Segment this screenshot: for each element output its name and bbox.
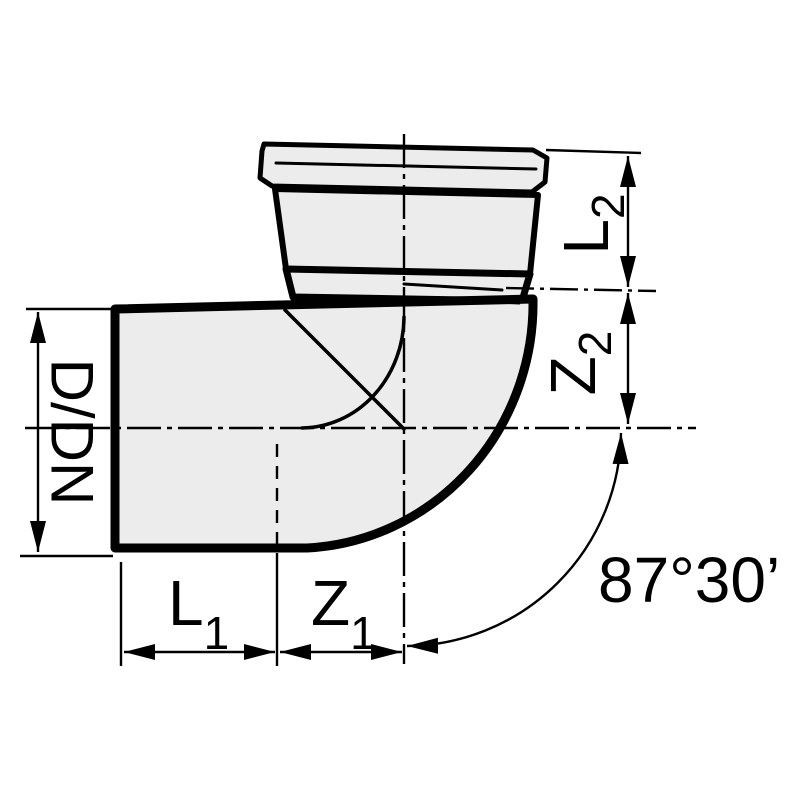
label-l1: L1 <box>168 567 229 659</box>
label-l2-base: L <box>550 219 622 255</box>
label-l1-base: L <box>168 567 204 639</box>
label-l2-subscript: 2 <box>582 193 634 219</box>
label-z2: Z2 <box>537 331 621 396</box>
pipe-bend-technical-drawing: D/DN L1 Z1 L2 Z2 87°30’ <box>0 0 800 800</box>
socket-wall <box>275 189 538 274</box>
bend-87-30-diagram: D/DN L1 Z1 L2 Z2 87°30’ <box>0 0 800 800</box>
label-z1: Z1 <box>311 567 376 659</box>
label-z2-base: Z <box>537 356 609 395</box>
label-z1-base: Z <box>311 567 350 639</box>
label-bend-angle: 87°30’ <box>598 544 780 616</box>
label-z1-subscript: 1 <box>350 607 376 659</box>
label-l2: L2 <box>550 193 634 254</box>
label-z2-subscript: 2 <box>569 331 621 357</box>
l2-top-extension-line <box>546 150 641 153</box>
label-l1-subscript: 1 <box>204 607 230 659</box>
label-diameter-dn: D/DN <box>39 359 106 506</box>
